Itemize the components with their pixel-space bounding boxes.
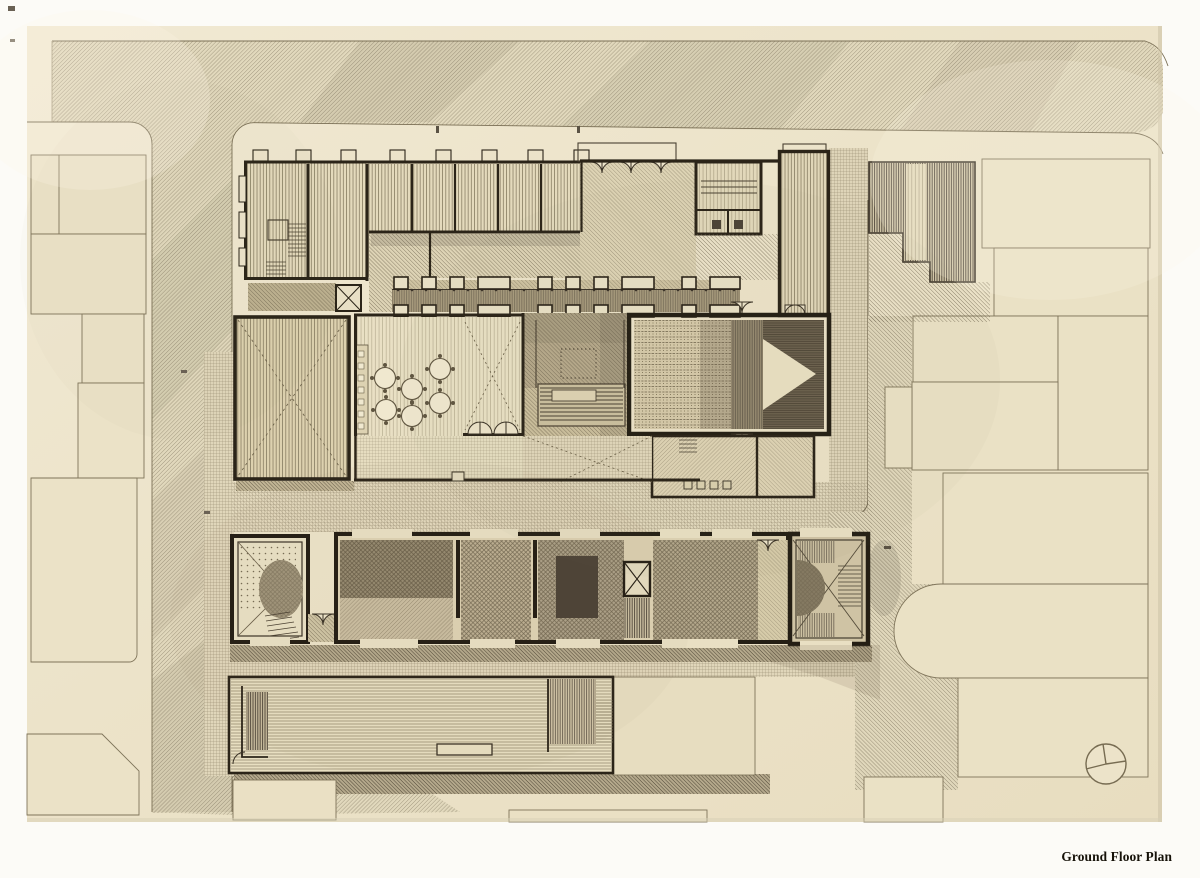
svg-text:Ground Floor Plan: Ground Floor Plan (1061, 849, 1172, 864)
